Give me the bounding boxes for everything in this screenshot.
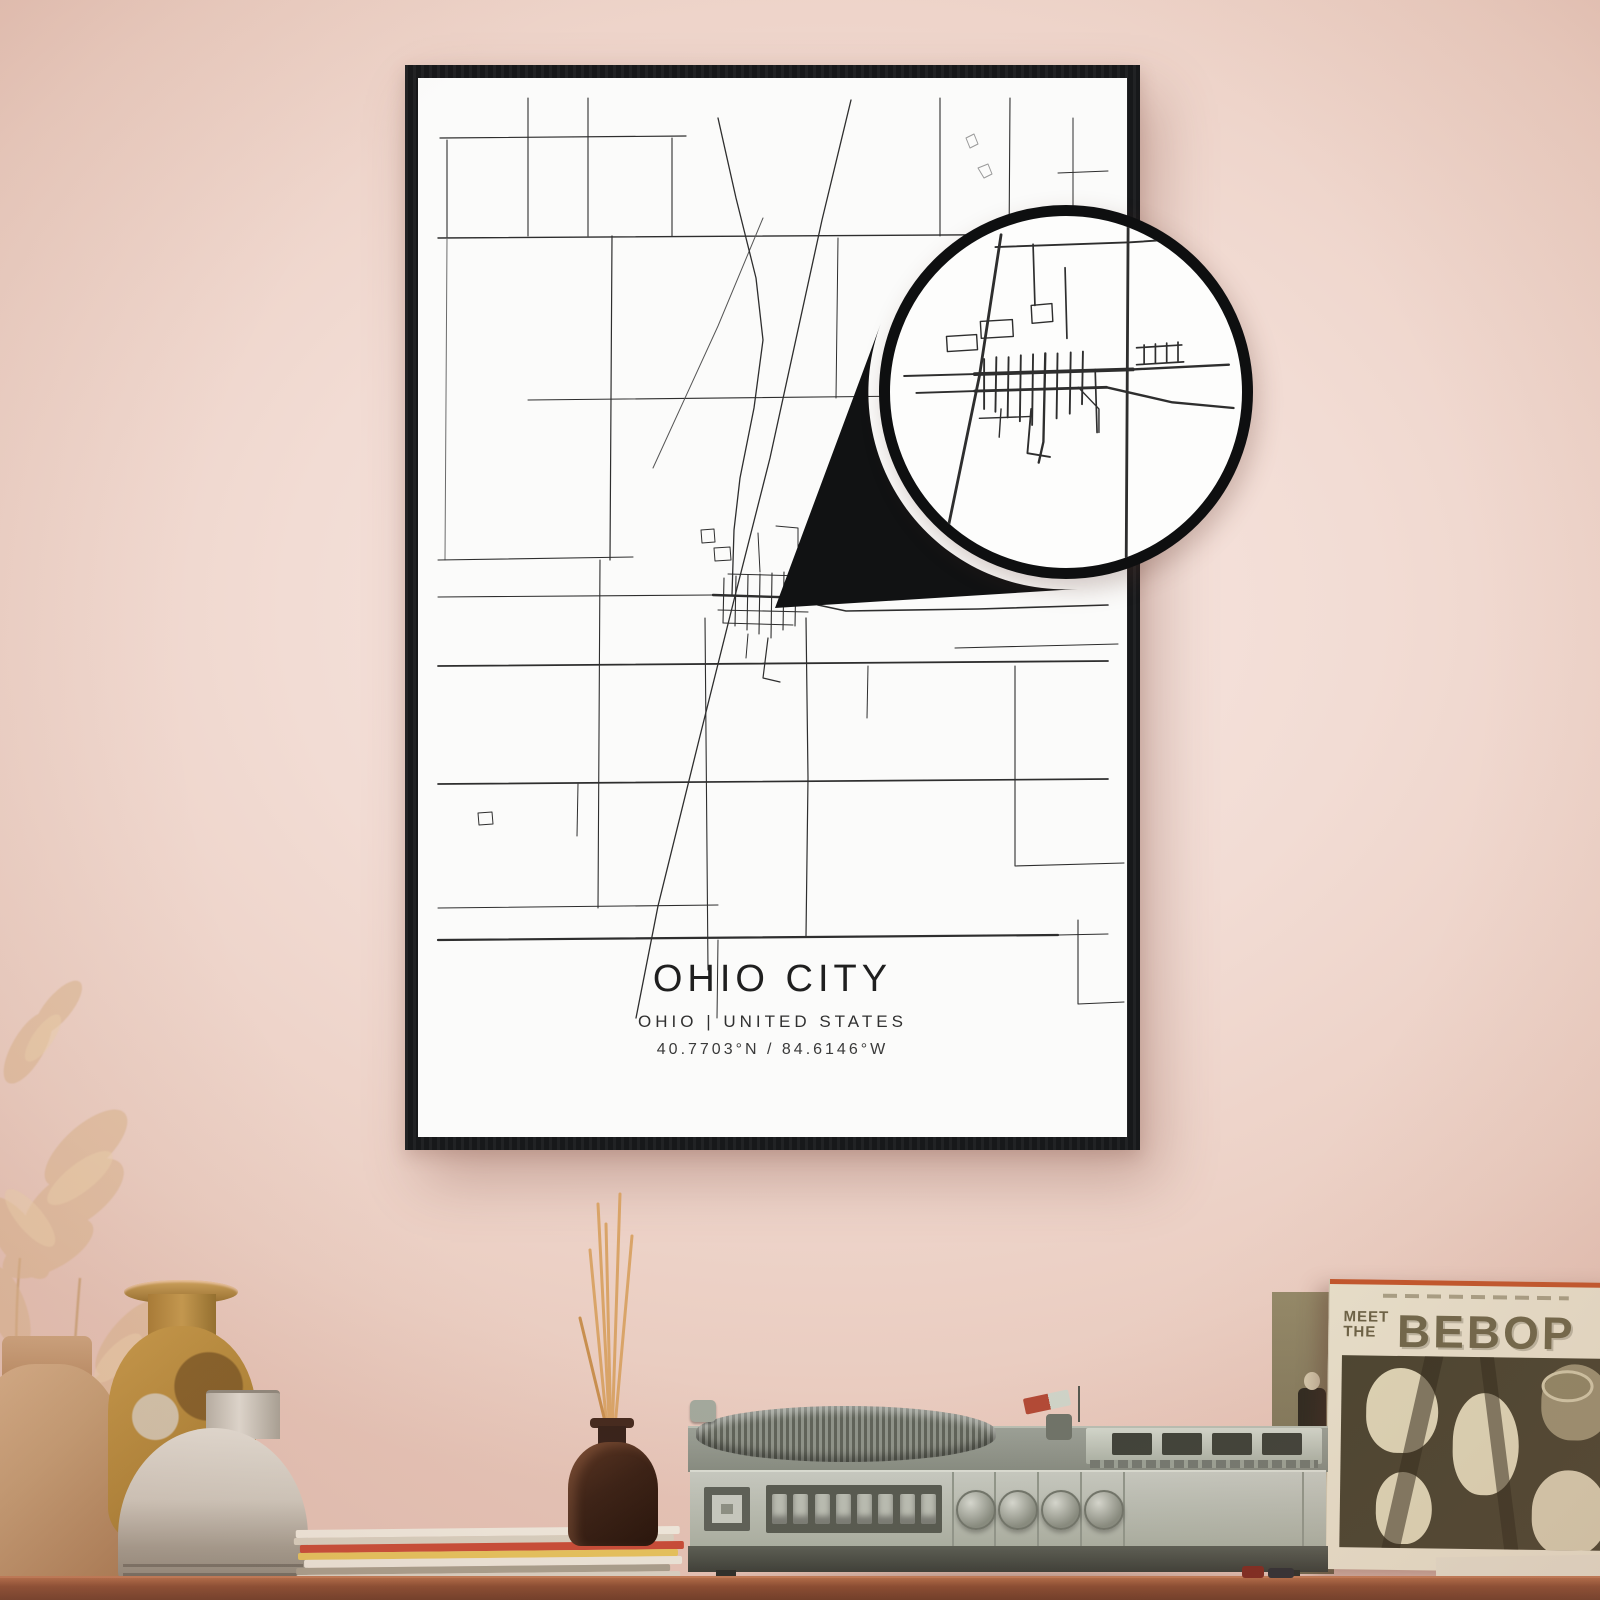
- volume-knob: [956, 1490, 996, 1530]
- lid-window: [1262, 1433, 1302, 1455]
- record-label-badge: [1541, 1370, 1593, 1403]
- preset-button-row: [766, 1485, 942, 1533]
- inset-street-detail: [890, 216, 1242, 568]
- player-plinth: [688, 1546, 1328, 1572]
- map-zoom-inset: [879, 205, 1253, 579]
- preset-button: [836, 1494, 851, 1524]
- panel-groove: [952, 1472, 954, 1548]
- tone-knob: [998, 1490, 1038, 1530]
- preset-button: [772, 1494, 787, 1524]
- album-header: MEET THE BEBOP: [1343, 1303, 1576, 1360]
- record-player: [688, 1398, 1328, 1582]
- preset-key-strip: [1090, 1460, 1318, 1468]
- cartoon-face: [1531, 1470, 1600, 1551]
- diffuser-reeds: [548, 1190, 680, 1440]
- tonearm-rest-post: [1078, 1386, 1080, 1422]
- gray-bell-vase: [118, 1390, 308, 1588]
- red-trinket: [1242, 1566, 1264, 1578]
- reed-diffuser: [548, 1190, 680, 1562]
- preset-button: [921, 1494, 936, 1524]
- preset-button: [815, 1494, 830, 1524]
- poster-subtitle: OHIO | UNITED STATES: [418, 1012, 1127, 1032]
- tan-vase-body: [0, 1364, 122, 1592]
- room-scene: OHIO CITY OHIO | UNITED STATES 40.7703°N…: [0, 0, 1600, 1600]
- album-meet-the: MEET THE: [1343, 1303, 1389, 1340]
- lid-window: [1212, 1433, 1252, 1455]
- balance-knob: [1041, 1490, 1081, 1530]
- gray-vase-body: [118, 1428, 308, 1588]
- preset-button: [857, 1494, 872, 1524]
- tonearm-pivot: [1046, 1414, 1072, 1440]
- preset-button: [793, 1494, 808, 1524]
- tan-vase: [0, 1336, 122, 1592]
- panel-groove: [1302, 1472, 1304, 1548]
- lid-window: [1112, 1433, 1152, 1455]
- figure-head: [1304, 1372, 1320, 1390]
- album-title: BEBOP: [1397, 1304, 1576, 1360]
- turntable-platter: [696, 1406, 996, 1462]
- album-accent-stripe: [1330, 1279, 1600, 1288]
- dark-trinket: [1268, 1568, 1294, 1578]
- poster-coordinates: 40.7703°N / 84.6146°W: [418, 1041, 1127, 1059]
- control-lid: [1086, 1428, 1322, 1464]
- album-cover-art: [1339, 1355, 1600, 1551]
- diffuser-bottle: [568, 1442, 658, 1546]
- preset-button: [878, 1494, 893, 1524]
- poster-caption: OHIO CITY OHIO | UNITED STATES 40.7703°N…: [418, 958, 1127, 1059]
- power-button: [704, 1487, 750, 1531]
- album-fine-print: [1382, 1294, 1569, 1301]
- lid-window: [1162, 1433, 1202, 1455]
- power-button-dot: [721, 1504, 733, 1514]
- table-edge: [0, 1576, 1600, 1600]
- preset-button: [900, 1494, 915, 1524]
- speed-lever: [690, 1400, 716, 1422]
- player-front-panel: [690, 1470, 1326, 1548]
- tonearm-headshell: [1023, 1389, 1071, 1414]
- album-word-the: THE: [1343, 1324, 1389, 1340]
- poster-title: OHIO CITY: [418, 958, 1127, 1001]
- tuning-knob: [1084, 1490, 1124, 1530]
- bebop-album-sleeve: MEET THE BEBOP: [1325, 1279, 1600, 1573]
